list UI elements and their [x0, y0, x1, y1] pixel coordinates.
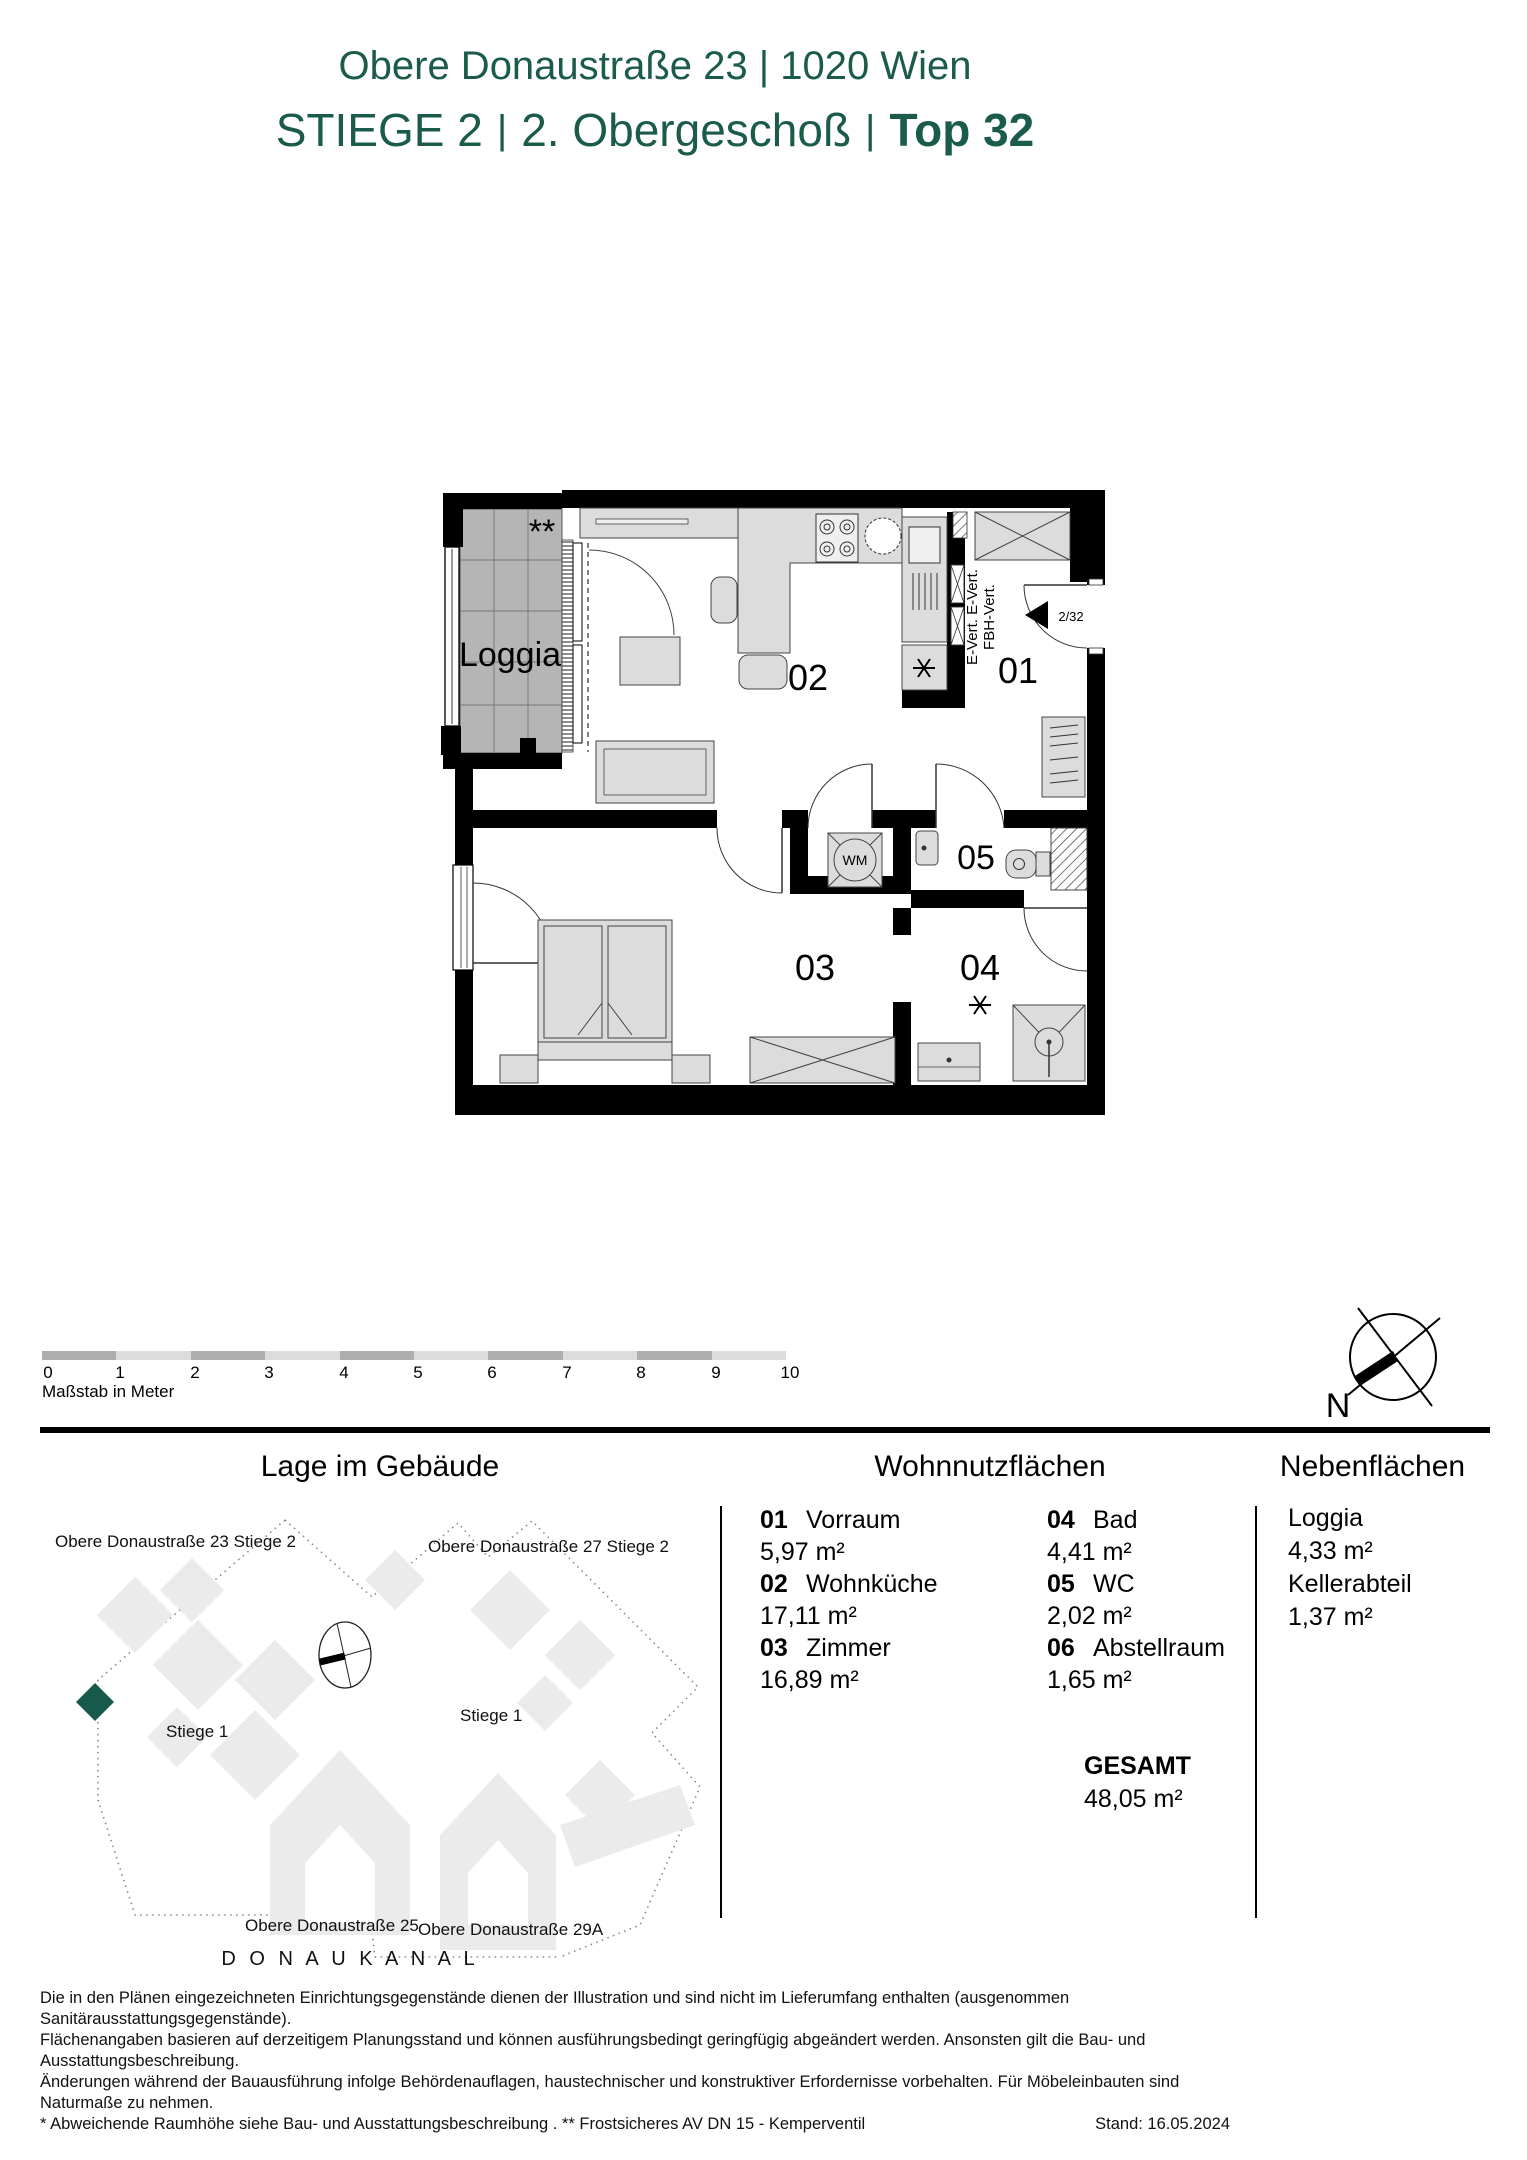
north-label: N [1326, 1387, 1351, 1425]
room-name: Vorraum [806, 1504, 900, 1536]
unit-title: STIEGE 2|2. Obergeschoß|Top 32 [0, 103, 1310, 157]
top-number-label: Top 32 [889, 104, 1034, 156]
scale-bar: 0 1 2 3 4 5 6 7 8 9 10 Maßstab in Meter [42, 1351, 786, 1411]
title-separator: | [851, 108, 889, 152]
footer-line: * Abweichende Raumhöhe siehe Bau- und Au… [40, 2114, 865, 2135]
room-no: 04 [1047, 1504, 1093, 1536]
room-area: 4,41 m² [1047, 1536, 1225, 1568]
room-entry: 04Bad [1047, 1504, 1225, 1536]
room-label-01: 01 [998, 650, 1038, 691]
sofa [596, 741, 714, 803]
bedroom-window [453, 865, 473, 970]
compass-icon: N [1280, 1280, 1520, 1460]
footer-line: Die in den Plänen eingezeichneten Einric… [40, 1988, 1230, 2030]
door-tag: 2/32 [1058, 609, 1083, 624]
loggia-label: Loggia [459, 636, 561, 674]
room-no: 02 [760, 1568, 806, 1600]
shower [1013, 1005, 1085, 1081]
hand-basin [916, 831, 938, 865]
room-name: Abstellraum [1093, 1632, 1225, 1664]
site-label-building-27: Obere Donaustraße 27 Stiege 2 [428, 1537, 669, 1556]
living-areas-col1: 01Vorraum 5,97 m² 02Wohnküche 17,11 m² 0… [760, 1504, 938, 1696]
side-areas-title: Nebenflächen [1255, 1450, 1490, 1484]
room-entry: 02Wohnküche [760, 1568, 938, 1600]
scale-tick: 1 [115, 1363, 124, 1383]
legal-footer: Die in den Plänen eingezeichneten Einric… [40, 1988, 1230, 2135]
room-area: 2,02 m² [1047, 1600, 1225, 1632]
shaft-label-evert: E-Vert. E-Vert. [964, 569, 981, 665]
scale-tick: 4 [339, 1363, 348, 1383]
kitchen-tall-units [902, 517, 947, 690]
side-area-value: 4,33 m² [1288, 1535, 1412, 1568]
kitchen-sink [865, 518, 901, 554]
stiege-label: STIEGE 2 [276, 104, 483, 156]
room-label-04: 04 [960, 947, 1000, 988]
room-label-02: 02 [788, 657, 828, 698]
side-area-name: Kellerabteil [1288, 1568, 1412, 1601]
room-no: 05 [1047, 1568, 1093, 1600]
room-entry: 06Abstellraum [1047, 1632, 1225, 1664]
total-label: GESAMT [1084, 1750, 1191, 1783]
page-header: Obere Donaustraße 23 | 1020 Wien STIEGE … [0, 0, 1310, 157]
room-entry: 03Zimmer [760, 1632, 938, 1664]
shaft-label-fbh: FBH-Vert. [981, 584, 998, 650]
scale-tick: 2 [190, 1363, 199, 1383]
site-label-stiege1-right: Stiege 1 [460, 1706, 522, 1725]
site-label-stiege1-left: Stiege 1 [166, 1722, 228, 1741]
site-label-building-23: Obere Donaustraße 23 Stiege 2 [55, 1532, 296, 1551]
site-plan: Obere Donaustraße 23 Stiege 2 Obere Dona… [40, 1495, 720, 1975]
room-label-05: 05 [957, 839, 995, 877]
footer-line: Flächenangaben basieren auf derzeitigem … [40, 2030, 1230, 2072]
wm-label: WM [843, 852, 868, 868]
living-areas-col2: 04Bad 4,41 m² 05WC 2,02 m² 06Abstellraum… [1047, 1504, 1225, 1696]
floor-plan: ** Loggia [420, 465, 1120, 1125]
scale-tick: 8 [636, 1363, 645, 1383]
footer-stand-date: Stand: 16.05.2024 [1095, 2114, 1230, 2135]
room-label-03: 03 [795, 947, 835, 988]
room-name: Bad [1093, 1504, 1137, 1536]
shaft-hatched [1051, 828, 1087, 890]
room-area: 1,65 m² [1047, 1664, 1225, 1696]
total-area: GESAMT 48,05 m² [1084, 1750, 1191, 1816]
north-needle [1355, 1351, 1398, 1386]
scale-tick: 9 [711, 1363, 720, 1383]
room-no: 06 [1047, 1632, 1093, 1664]
coffee-table [620, 637, 680, 685]
chair [711, 577, 737, 623]
site-label-canal: D O N A U K A N A L [221, 1948, 478, 1970]
toilet [1006, 850, 1036, 878]
room-no: 01 [760, 1504, 806, 1536]
column-divider [720, 1506, 722, 1918]
room-no: 03 [760, 1632, 806, 1664]
site-label-building-29a: Obere Donaustraße 29A [418, 1920, 604, 1939]
nightstand [672, 1055, 710, 1083]
scale-tick: 3 [264, 1363, 273, 1383]
site-label-building-25: Obere Donaustraße 25 [245, 1916, 419, 1935]
chair [739, 655, 787, 689]
footer-line: Änderungen während der Bauausführung inf… [40, 2072, 1230, 2114]
room-name: Wohnküche [806, 1568, 938, 1600]
title-separator: | [483, 108, 521, 152]
living-areas-title: Wohnnutzflächen [740, 1450, 1240, 1484]
scale-tick: 0 [43, 1363, 52, 1383]
room-entry: 01Vorraum [760, 1504, 938, 1536]
scale-tick: 5 [413, 1363, 422, 1383]
room-area: 5,97 m² [760, 1536, 938, 1568]
double-bed [538, 920, 672, 1060]
horizontal-divider [40, 1427, 1490, 1433]
loggia-note: ** [529, 513, 555, 551]
side-area-value: 1,37 m² [1288, 1601, 1412, 1634]
address-title: Obere Donaustraße 23 | 1020 Wien [0, 44, 1310, 89]
room-name: WC [1093, 1568, 1135, 1600]
room-entry: 05WC [1047, 1568, 1225, 1600]
side-areas-list: Loggia 4,33 m² Kellerabteil 1,37 m² [1288, 1502, 1412, 1634]
scale-caption: Maßstab in Meter [42, 1382, 174, 1402]
radiator [1042, 717, 1085, 797]
scale-tick: 7 [562, 1363, 571, 1383]
site-plan-title: Lage im Gebäude [40, 1450, 720, 1484]
floor-label: 2. Obergeschoß [521, 104, 851, 156]
site-buildings [97, 1550, 695, 1935]
site-compass-icon [319, 1622, 371, 1688]
abstellraum: WM [828, 833, 882, 887]
room-name: Zimmer [806, 1632, 891, 1664]
scale-tick: 10 [781, 1363, 800, 1383]
scale-bar-segments [42, 1351, 786, 1360]
room-area: 17,11 m² [760, 1600, 938, 1632]
stove [816, 514, 858, 562]
total-value: 48,05 m² [1084, 1783, 1191, 1816]
scale-tick: 6 [487, 1363, 496, 1383]
nightstand [500, 1055, 538, 1083]
room-area: 16,89 m² [760, 1664, 938, 1696]
column-divider [1255, 1506, 1257, 1918]
unit-location-marker [76, 1683, 114, 1721]
side-area-name: Loggia [1288, 1502, 1412, 1535]
